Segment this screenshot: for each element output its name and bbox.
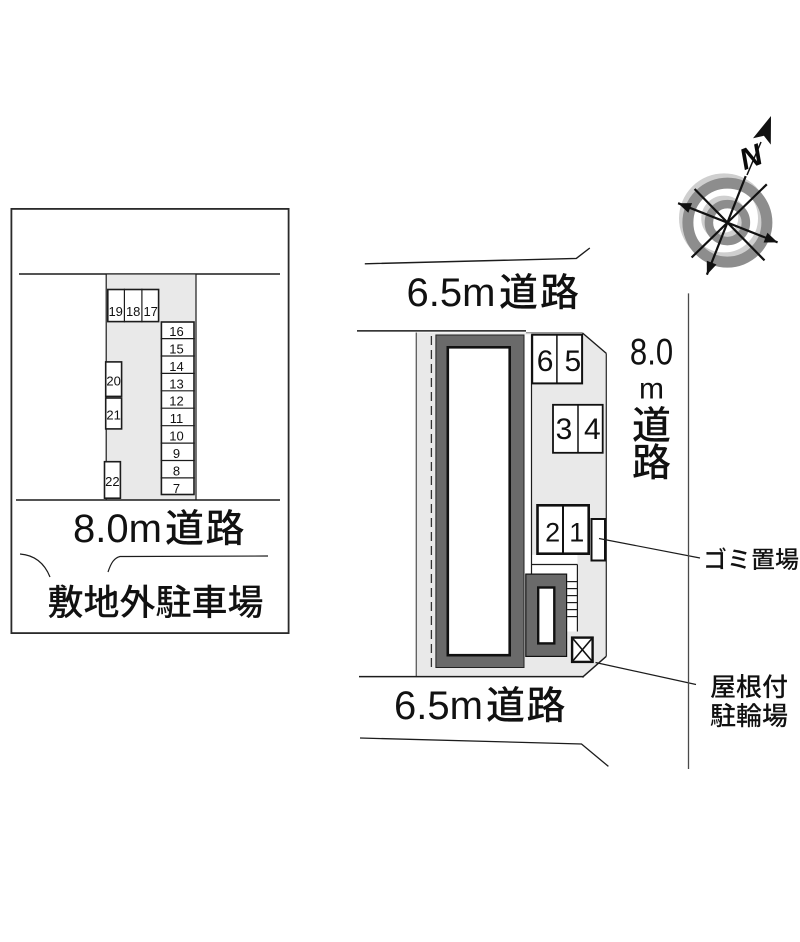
- svg-text:8.0: 8.0: [630, 332, 673, 373]
- svg-text:17: 17: [143, 304, 157, 319]
- svg-text:6: 6: [537, 345, 554, 378]
- svg-text:4: 4: [584, 413, 601, 446]
- svg-text:19: 19: [108, 304, 122, 319]
- svg-text:13: 13: [169, 376, 183, 391]
- svg-text:6.5m: 6.5m: [394, 684, 483, 728]
- svg-text:5: 5: [565, 345, 582, 378]
- svg-text:22: 22: [105, 474, 119, 489]
- svg-text:1: 1: [569, 518, 584, 548]
- svg-text:2: 2: [545, 518, 560, 548]
- svg-text:15: 15: [169, 342, 183, 357]
- svg-text:8: 8: [173, 463, 180, 478]
- svg-text:6.5m: 6.5m: [407, 271, 496, 315]
- svg-text:11: 11: [170, 411, 184, 426]
- svg-text:8.0m: 8.0m: [73, 507, 162, 551]
- svg-text:18: 18: [126, 304, 140, 319]
- svg-text:3: 3: [556, 413, 573, 446]
- svg-text:12: 12: [169, 394, 183, 409]
- svg-text:14: 14: [169, 359, 183, 374]
- svg-text:16: 16: [169, 324, 183, 339]
- svg-text:m: m: [639, 373, 664, 406]
- svg-text:10: 10: [169, 429, 183, 444]
- svg-text:7: 7: [173, 481, 180, 496]
- svg-text:20: 20: [106, 373, 120, 388]
- svg-text:21: 21: [106, 408, 120, 423]
- svg-text:N: N: [735, 138, 768, 177]
- svg-text:9: 9: [173, 446, 180, 461]
